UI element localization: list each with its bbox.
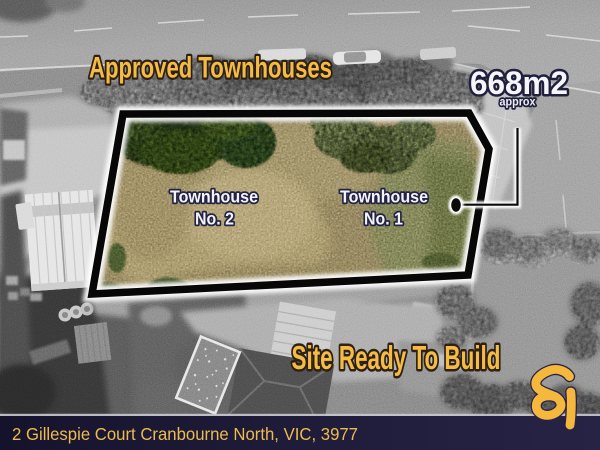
svg-text:Townhouse: Townhouse [170, 187, 258, 207]
svg-text:Approved Townhouses: Approved Townhouses [89, 52, 332, 85]
svg-text:No. 2: No. 2 [195, 209, 234, 229]
svg-text:No. 1: No. 1 [364, 209, 403, 229]
svg-text:2 Gillespie Court Cranbourne N: 2 Gillespie Court Cranbourne North, VIC,… [12, 424, 358, 444]
svg-text:Townhouse: Townhouse [340, 187, 428, 207]
svg-text:Site Ready To Build: Site Ready To Build [292, 339, 501, 376]
svg-text:approx: approx [500, 95, 536, 109]
